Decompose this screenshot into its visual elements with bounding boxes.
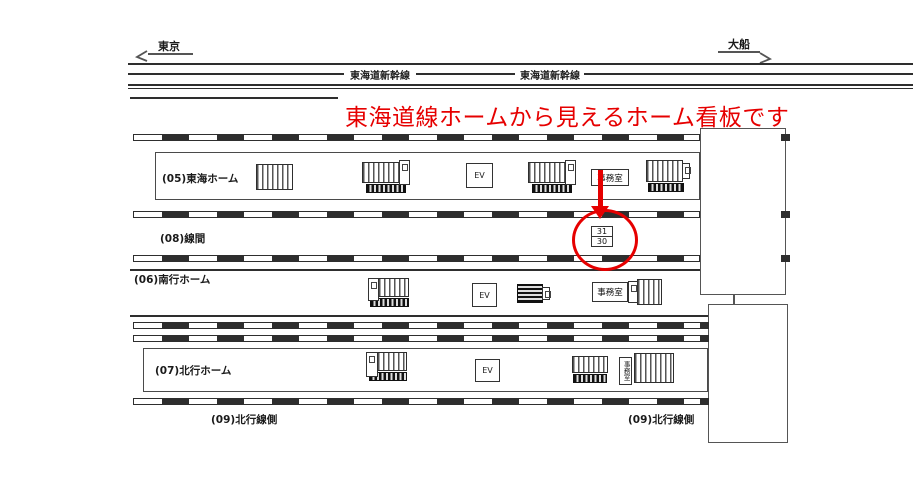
stairs-icon <box>256 164 293 190</box>
platform-09-label-left: (09)北行線側 <box>211 412 277 427</box>
building-connector <box>733 295 735 304</box>
track-peek <box>781 211 790 218</box>
elevator-box: EV <box>475 359 500 382</box>
building-box-upper <box>700 128 786 295</box>
escalator-icon <box>517 284 543 303</box>
escalator-icon <box>366 184 406 193</box>
track-endcap <box>700 398 709 405</box>
escalator-cell-icon <box>565 160 576 185</box>
stairs-icon <box>377 352 407 371</box>
escalator-cell-icon <box>368 278 379 301</box>
station-layout-diagram: 東京 大船 東海道新幹線 東海道新幹線 東海道線ホームから見えるホーム看板です … <box>0 0 919 491</box>
escalator-icon <box>648 183 684 192</box>
rail-line <box>130 97 338 99</box>
shinkansen-label-1: 東海道新幹線 <box>347 67 413 82</box>
escalator-icon <box>532 184 572 193</box>
track-endcap <box>700 335 709 342</box>
track-endcap <box>700 322 709 329</box>
stairs-icon <box>378 278 409 297</box>
elevator-box: EV <box>466 163 493 188</box>
track-band <box>133 398 708 405</box>
annotation-note: 東海道線ホームから見えるホーム看板です <box>345 98 789 132</box>
rail-line <box>416 73 515 75</box>
track-band <box>133 134 700 141</box>
track-band <box>133 335 708 342</box>
rail-line <box>128 63 913 65</box>
rail-line <box>128 73 344 75</box>
stairs-icon <box>528 162 566 183</box>
building-box-lower <box>708 304 788 443</box>
stairs-icon <box>634 353 674 383</box>
escalator-cell-icon <box>366 352 378 377</box>
platform-05-label: (05)東海ホーム <box>162 171 238 186</box>
office-box: 事務室 <box>591 169 629 186</box>
tokyo-underline <box>148 53 193 55</box>
platform-08-label: (08)線間 <box>160 231 205 246</box>
platform-sign-30: 30 <box>591 236 613 247</box>
escalator-cell-icon <box>399 160 410 185</box>
stairs-icon <box>646 160 683 182</box>
track-peek <box>781 134 790 141</box>
shinkansen-label-2: 東海道新幹線 <box>517 67 583 82</box>
platform-09-label-right: (09)北行線側 <box>628 412 694 427</box>
escalator-cell-icon <box>628 281 638 303</box>
rail-line <box>584 73 913 75</box>
ofuna-underline <box>718 51 760 53</box>
stairs-icon <box>572 356 608 373</box>
red-arrow-head-icon <box>591 206 609 219</box>
separator-line <box>130 315 708 317</box>
left-arrow-icon <box>135 48 151 64</box>
office-box-vertical: 事務室 <box>619 357 632 385</box>
stairs-icon <box>362 162 400 183</box>
rail-line <box>128 88 913 90</box>
rail-line <box>128 84 913 86</box>
escalator-cell-icon <box>682 163 690 179</box>
platform-07-label: (07)北行ホーム <box>155 363 231 378</box>
track-band <box>133 322 708 329</box>
direction-label-tokyo: 東京 <box>158 38 180 54</box>
red-arrow-shaft <box>598 170 603 207</box>
elevator-box: EV <box>472 283 497 307</box>
track-peek <box>781 255 790 262</box>
escalator-icon <box>573 374 607 383</box>
platform-06-label: (06)南行ホーム <box>134 272 210 287</box>
direction-label-ofuna: 大船 <box>728 36 750 52</box>
stairs-icon <box>637 279 662 305</box>
escalator-cell-icon <box>542 287 550 300</box>
separator-line <box>130 269 708 271</box>
office-box: 事務室 <box>592 282 628 302</box>
